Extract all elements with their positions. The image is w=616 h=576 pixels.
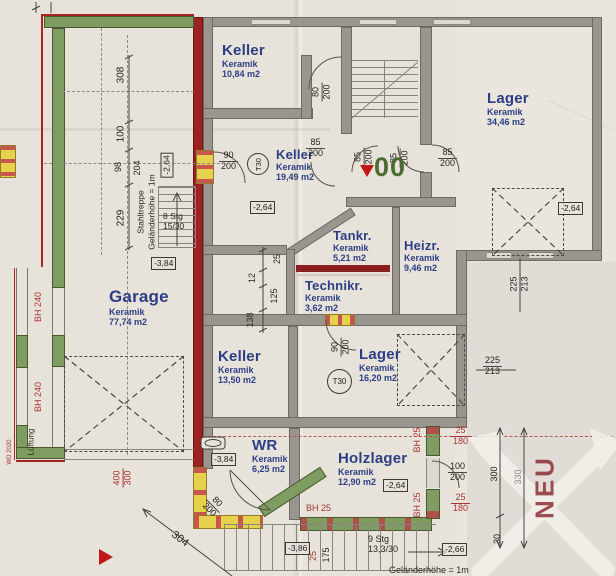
- steel-stair-label: Stahltreppe Geländerhöhe = 1m: [135, 174, 156, 249]
- dim-304: 304: [169, 529, 191, 550]
- stair-name: Stahltreppe: [135, 174, 146, 249]
- room-material: Keramik: [222, 59, 265, 69]
- room-area: 77,74 m2: [109, 317, 169, 327]
- door-width: 85: [443, 148, 453, 158]
- door-dim-keller-mid: 90 200: [219, 151, 238, 172]
- level-badge-stahltreppe: -3,84: [151, 257, 176, 270]
- dashed-shaft-lager-big: [492, 188, 564, 256]
- room-area: 10,84 m2: [222, 69, 265, 79]
- wall-outline-red-far: [14, 268, 15, 460]
- window-height: 180: [451, 503, 470, 514]
- room-name: WR: [252, 437, 288, 454]
- dim-25: 25: [272, 254, 282, 264]
- room-area: 9,46 m2: [404, 263, 440, 273]
- dim-100: 100: [116, 126, 127, 143]
- wall-building-left: [203, 17, 213, 469]
- room-area: 6,25 m2: [252, 464, 288, 474]
- dim-98: 98: [113, 162, 123, 172]
- room-label-keller-top: Keller Keramik 10,84 m2: [222, 42, 265, 80]
- window-top-2: [360, 19, 396, 25]
- room-label-lager-small: Lager Keramik 16,20 m2: [359, 346, 401, 384]
- room-area: 5,21 m2: [333, 253, 372, 263]
- room-material: Keramik: [252, 454, 288, 464]
- wall-stair-left: [341, 27, 352, 134]
- door-height: 200: [322, 82, 333, 101]
- wall-stair-right: [420, 27, 432, 145]
- door-dim-tankraum: 85 200: [306, 138, 325, 159]
- dim-229: 229: [116, 210, 127, 227]
- room-area: 19,49 m2: [276, 172, 314, 182]
- room-area: 16,20 m2: [359, 373, 401, 383]
- door-dim-lager-big: 85 200: [438, 148, 457, 169]
- stair-ratio: 15/30: [163, 221, 184, 231]
- dim-value: 225: [485, 356, 500, 366]
- dim-308: 308: [116, 67, 127, 84]
- room-material: Keramik: [338, 467, 407, 477]
- outdoor-stair-railing: Geländerhöhe = 1m: [389, 565, 469, 575]
- dim-175: 175: [321, 547, 331, 562]
- room-label-heizraum: Heizr. Keramik 9,46 m2: [404, 238, 440, 274]
- room-label-lager-big: Lager Keramik 34,46 m2: [487, 90, 529, 128]
- room-material: Keramik: [218, 365, 261, 375]
- room-material: Keramik: [333, 243, 372, 253]
- door-width: 80: [312, 87, 322, 97]
- door-dim-keller-top: 80 200: [312, 82, 333, 101]
- wall-keller-low-right: [288, 326, 298, 418]
- door-height: 200: [438, 158, 457, 169]
- steel-stair-steps: 8 Stg 15/30: [163, 211, 184, 231]
- dim-value: 213: [483, 366, 502, 377]
- dim-125: 125: [269, 288, 279, 303]
- dim-225-213-horizontal: 225 213: [483, 356, 502, 377]
- floor-plan: Keller Keramik 10,84 m2 Lager Keramik 34…: [0, 0, 616, 576]
- paper-fold-horizontal: [0, 128, 330, 131]
- door-width: 85: [311, 138, 321, 148]
- level-badge-wr: -3,84: [211, 453, 236, 466]
- annotation-lueftung: Lüftung: [27, 429, 36, 456]
- annotation-bh25-b: BH 25: [412, 492, 422, 517]
- room-material: Keramik: [276, 162, 314, 172]
- wall-green-corner-h: [16, 447, 65, 459]
- door-dim-hall-a: 85 200: [354, 147, 375, 166]
- wall-green-top: [44, 16, 194, 28]
- dim-300: 300: [489, 466, 499, 481]
- level-badge-outside-sw: -3,86: [285, 542, 310, 555]
- wall-tank-heiz-top: [346, 197, 456, 207]
- window-height: 180: [451, 436, 470, 447]
- door-gap-holzlager: [426, 458, 440, 488]
- door-height: 200: [364, 147, 375, 166]
- door-width: 100: [450, 462, 465, 472]
- door-dim-lager-small: 90 200: [331, 337, 352, 356]
- room-name: Lager: [359, 346, 401, 363]
- room-name: Garage: [109, 287, 169, 307]
- room-name: Keller: [222, 42, 265, 59]
- axis-line-v1: [127, 35, 128, 455]
- window-top-3: [434, 19, 470, 25]
- annotation-bh240-b: BH 240: [33, 382, 43, 412]
- wall-tank-technik-line: [296, 274, 390, 276]
- t30-label: T30: [254, 158, 263, 171]
- dashed-shaft-lager-small: [397, 334, 465, 406]
- wall-green-left-a: [52, 28, 65, 288]
- room-name: Keller: [218, 348, 261, 365]
- door-height: 200: [341, 337, 352, 356]
- room-name: Tankr.: [333, 228, 372, 243]
- door-height: 200: [448, 472, 467, 483]
- wall-keller-divider: [203, 108, 313, 119]
- window-left-a: [52, 288, 65, 335]
- door-height: 200: [219, 161, 238, 172]
- wall-outline-red-left: [41, 14, 43, 267]
- room-material: Keramik: [109, 307, 169, 317]
- dim-204: 204: [132, 160, 142, 175]
- paper-shade-outdoor: [467, 262, 616, 576]
- annotation-bh25-c: BH 25: [306, 503, 331, 513]
- dim-12: 12: [247, 273, 257, 283]
- room-label-tankraum: Tankr. Keramik 5,21 m2: [333, 228, 372, 264]
- wall-wr-right: [289, 428, 300, 520]
- dashed-shaft-garage: [64, 356, 184, 452]
- annotation-bh240-a: BH 240: [33, 292, 43, 322]
- dim-330: 330: [513, 469, 523, 484]
- dim-138: 138: [245, 312, 255, 327]
- room-name: Lager: [487, 90, 529, 107]
- door-height: 300: [123, 468, 134, 487]
- outdoor-stair-steps: 9 Stg 13,3/30: [368, 534, 398, 554]
- window-dim-b: 25 180: [451, 493, 470, 514]
- door-opening-left: [0, 145, 16, 178]
- wall-right: [592, 17, 602, 260]
- room-material: Keramik: [305, 293, 363, 303]
- window-width: 25: [456, 493, 466, 503]
- room-label-wr: WR Keramik 6,25 m2: [252, 437, 288, 475]
- retaining-wall-lines: [16, 268, 28, 335]
- stair-railing: Geländerhöhe = 1m: [146, 174, 157, 249]
- stair-ratio: 13,3/30: [368, 544, 398, 554]
- level-badge-keller-mid-rot: -2,64: [161, 152, 174, 177]
- wall-heiz-left: [392, 207, 400, 315]
- t30-door-tag-keller-mid: T30: [247, 153, 269, 175]
- wall-tank-technik-red: [296, 265, 390, 272]
- t30-label: T30: [333, 377, 347, 386]
- dim-value: 213: [520, 274, 531, 293]
- door-opening-lager-small: [325, 314, 355, 326]
- door-opening-keller-mid: [196, 150, 214, 184]
- room-area: 13,50 m2: [218, 375, 261, 385]
- room-material: Keramik: [404, 253, 440, 263]
- entrance-marker-icon: [360, 165, 374, 177]
- level-badge-outdoor-stair: -2,66: [442, 543, 467, 556]
- door-width: 90: [224, 151, 234, 161]
- level-badge-lager-big: -2,64: [558, 202, 583, 215]
- room-label-technikraum: Technikr. Keramik 3,62 m2: [305, 278, 363, 314]
- room-material: Keramik: [487, 107, 529, 117]
- room-name: Heizr.: [404, 238, 440, 253]
- window-width: 25: [456, 426, 466, 436]
- annotation-bh25-a: BH 25: [412, 427, 422, 452]
- annotation-wd: WD 2020: [7, 439, 13, 464]
- annotation-neu-stamp: NEU: [530, 455, 561, 519]
- wall-green-far-a: [16, 335, 28, 368]
- wall-outline-red-corner: [16, 460, 65, 462]
- level-badge-keller-mid: -2,64: [250, 201, 275, 214]
- dim-225-213-vertical: 225 213: [510, 274, 531, 293]
- dim-value: 225: [510, 276, 520, 291]
- door-width: 85: [354, 152, 364, 162]
- dim-30: 30: [492, 534, 502, 544]
- room-name: Technikr.: [305, 278, 363, 293]
- room-label-keller-low: Keller Keramik 13,50 m2: [218, 348, 261, 386]
- level-badge-holzlager: -2,64: [383, 479, 408, 492]
- stairwell-main: [352, 60, 418, 118]
- dimension-lines: [32, 2, 527, 576]
- stair-count: 9 Stg: [368, 534, 398, 544]
- stairwell-divider: [384, 60, 385, 118]
- section-marker-icon: [99, 549, 113, 565]
- room-area: 34,46 m2: [487, 117, 529, 127]
- room-area: 3,62 m2: [305, 303, 363, 313]
- room-label-garage: Garage Keramik 77,74 m2: [109, 287, 169, 328]
- room-material: Keramik: [359, 363, 401, 373]
- window-dim-a: 25 180: [451, 426, 470, 447]
- wall-green-holz-right-b: [426, 489, 440, 519]
- axis-line-h2: [57, 91, 194, 92]
- room-name: Holzlager: [338, 450, 407, 467]
- axis-line-v2: [101, 18, 102, 255]
- t30-door-tag-lager-small: T30: [327, 369, 352, 394]
- door-width: 90: [331, 342, 341, 352]
- wall-green-holz-right-a: [426, 426, 440, 456]
- level-zero-marker: 00: [374, 152, 406, 183]
- window-top-1: [252, 19, 290, 25]
- retaining-wall-lines-2: [16, 368, 28, 425]
- stair-count: 8 Stg: [163, 211, 184, 221]
- door-height: 200: [306, 148, 325, 159]
- door-dim-garage: 400 300: [113, 468, 134, 487]
- door-dim-holzlager: 100 200: [448, 462, 467, 483]
- door-width: 400: [113, 470, 123, 485]
